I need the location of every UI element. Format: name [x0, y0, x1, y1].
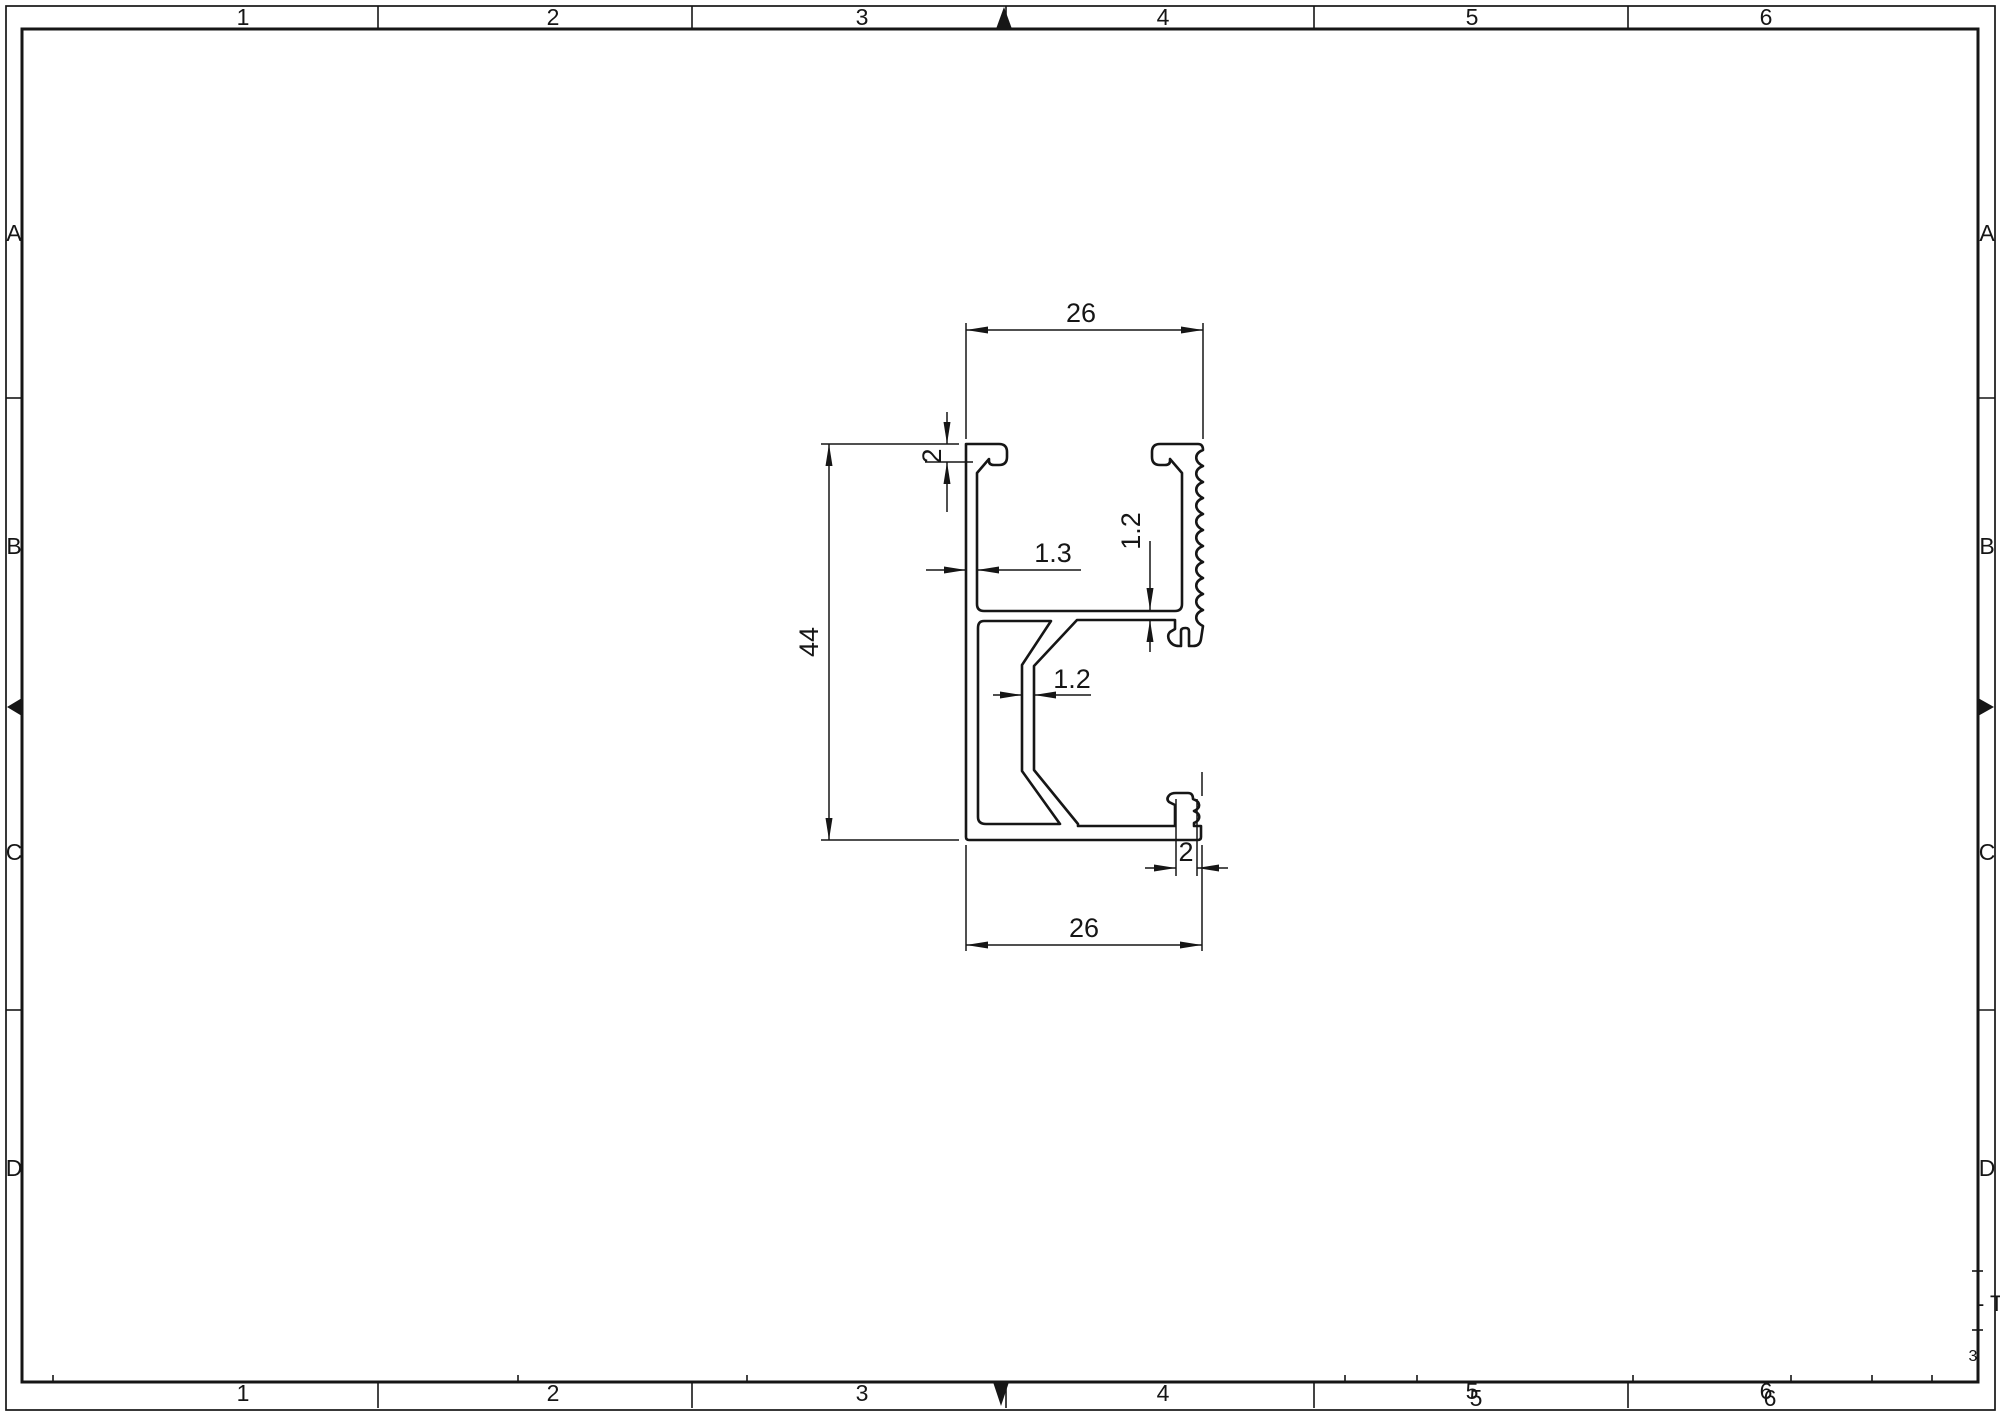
zone-label-top-6: 6	[1760, 4, 1773, 30]
zone-label-bottom-3: 3	[856, 1380, 869, 1406]
arrow-icon	[1154, 865, 1176, 872]
arrow-icon	[1197, 865, 1219, 872]
zone-label-right-b: B	[1979, 533, 1994, 559]
arrow-icon	[966, 942, 988, 949]
profile-outline	[966, 444, 1203, 840]
arrow-icon	[1147, 620, 1154, 642]
outer-border	[6, 6, 1995, 1410]
title-block-fragment-mark: 3	[1969, 1348, 1978, 1365]
zone-label-left-a: A	[6, 220, 22, 246]
arrow-icon	[966, 327, 988, 334]
center-mark-left-icon	[7, 698, 22, 716]
dim-floor-thickness-value: 1.2	[1116, 512, 1146, 550]
dim-top-width-value: 26	[1066, 298, 1096, 328]
drawing-sheet: 1 2 3 4 5 6 1 2 3 4 5 5 6 6 A B C D A B …	[0, 0, 2000, 1414]
arrow-icon	[944, 567, 966, 574]
title-block-fragment-text: - T	[1977, 1291, 2000, 1316]
arrow-icon	[826, 818, 833, 840]
arrow-icon	[826, 444, 833, 466]
dim-web-thickness-value: 1.2	[1053, 664, 1091, 694]
zone-label-top-4: 4	[1157, 4, 1170, 30]
zone-label-bottom-1: 1	[237, 1380, 250, 1406]
center-mark-right-icon	[1978, 698, 1994, 716]
zone-label-bottom-6-ghost: 6	[1764, 1385, 1777, 1411]
zone-label-right-c: C	[1979, 839, 1996, 865]
zone-label-left-b: B	[6, 533, 21, 559]
arrow-icon	[1000, 692, 1022, 699]
zone-label-top-2: 2	[547, 4, 560, 30]
inner-frame	[22, 29, 1978, 1382]
arrow-icon	[1147, 588, 1154, 610]
arrow-icon	[1181, 327, 1203, 334]
zone-label-left-c: C	[6, 839, 23, 865]
zone-label-right-d: D	[1979, 1155, 1996, 1181]
zone-label-bottom-4: 4	[1157, 1380, 1170, 1406]
arrow-icon	[977, 567, 999, 574]
dim-lip-thickness-value: 2	[1178, 837, 1193, 867]
centering-marks	[7, 7, 1994, 1406]
dim-flange-thickness-value: 2	[917, 448, 947, 463]
sheet-border	[6, 6, 1995, 1410]
zone-label-bottom-2: 2	[547, 1380, 560, 1406]
dim-bottom-width-value: 26	[1069, 913, 1099, 943]
zone-label-top-5: 5	[1466, 4, 1479, 30]
arrow-icon	[944, 422, 951, 444]
dim-height-value: 44	[794, 627, 824, 657]
center-mark-top-icon	[996, 7, 1012, 29]
zone-label-bottom-5-ghost: 5	[1470, 1385, 1483, 1411]
arrow-icon	[944, 462, 951, 484]
zone-label-right-a: A	[1979, 220, 1995, 246]
zone-label-top-3: 3	[856, 4, 869, 30]
extrusion-profile-cross-section	[966, 444, 1203, 840]
dimension-arrowheads	[826, 327, 1220, 949]
zone-label-top-1: 1	[237, 4, 250, 30]
zone-label-left-d: D	[6, 1155, 23, 1181]
dim-wall-thickness-value: 1.3	[1034, 538, 1072, 568]
arrow-icon	[1180, 942, 1202, 949]
